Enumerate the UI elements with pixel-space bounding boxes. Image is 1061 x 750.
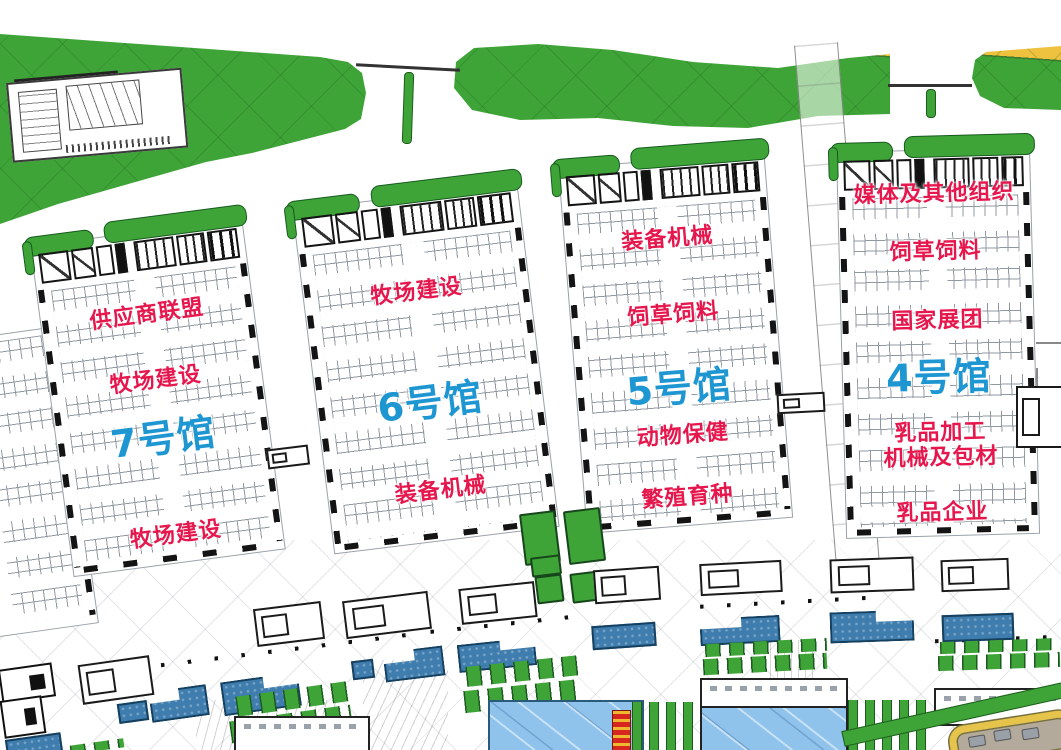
median-planting-strip xyxy=(926,89,936,118)
plaza-pavilion xyxy=(234,716,370,750)
service-building-rooms xyxy=(65,79,143,130)
car xyxy=(968,734,987,748)
canopy xyxy=(591,622,657,650)
bridge-structure xyxy=(777,392,826,414)
service-building-plan xyxy=(6,68,188,163)
road-edge-line xyxy=(888,84,972,87)
zone-label: 乳品加工 机械及包材 xyxy=(844,417,1037,473)
median-planting-strip xyxy=(402,72,415,144)
red-striped-marker xyxy=(612,710,631,750)
hall-4[interactable]: 媒体及其他组织 饲草饲料 国家展团 4号馆 乳品加工 机械及包材 乳品企业 xyxy=(836,147,1040,539)
roadside-structure xyxy=(1016,386,1061,448)
car xyxy=(1021,727,1040,741)
planting-square xyxy=(563,507,606,565)
service-building xyxy=(940,558,1009,592)
road-marking-line xyxy=(1036,342,1061,344)
canopy xyxy=(942,613,1015,642)
zone-label: 饲草饲料 xyxy=(839,236,1032,266)
planting-square xyxy=(534,573,564,604)
pavilion-detail xyxy=(244,724,360,729)
hall-4-title: 4号馆 xyxy=(842,344,1035,404)
service-building xyxy=(593,566,661,605)
expo-site-plan: 供应商联盟 牧场建设 7号馆 牧场建设 牧场建设 6号馆 装备机械 装备机械 饲… xyxy=(0,0,1061,750)
planting-bars xyxy=(632,702,698,750)
water-pool xyxy=(702,706,846,750)
zone-label: 国家展团 xyxy=(841,306,1034,336)
zone-label: 乳品企业 xyxy=(846,498,1039,528)
hall-4-green-roof xyxy=(904,133,1035,158)
canopy xyxy=(117,700,149,724)
canopy xyxy=(351,659,375,681)
car xyxy=(993,728,1012,742)
service-building-comb xyxy=(65,136,172,153)
hall-6[interactable]: 牧场建设 6号馆 装备机械 xyxy=(292,182,560,554)
corner-structure xyxy=(0,695,46,738)
pavilion-detail xyxy=(710,686,838,691)
landscape-berm-right xyxy=(970,44,1061,116)
zone-label: 媒体及其他组织 xyxy=(838,179,1031,209)
service-building xyxy=(829,557,914,594)
hall-5[interactable]: 装备机械 饲草饲料 5号馆 动物保健 繁殖育种 xyxy=(558,152,793,534)
road-edge-line xyxy=(356,63,460,71)
plaza-pavilion xyxy=(700,678,848,750)
hall-7[interactable]: 供应商联盟 牧场建设 7号馆 牧场建设 xyxy=(30,218,286,577)
service-building xyxy=(699,560,783,596)
service-building-rooms xyxy=(17,88,62,153)
aisle-structure xyxy=(266,445,310,470)
